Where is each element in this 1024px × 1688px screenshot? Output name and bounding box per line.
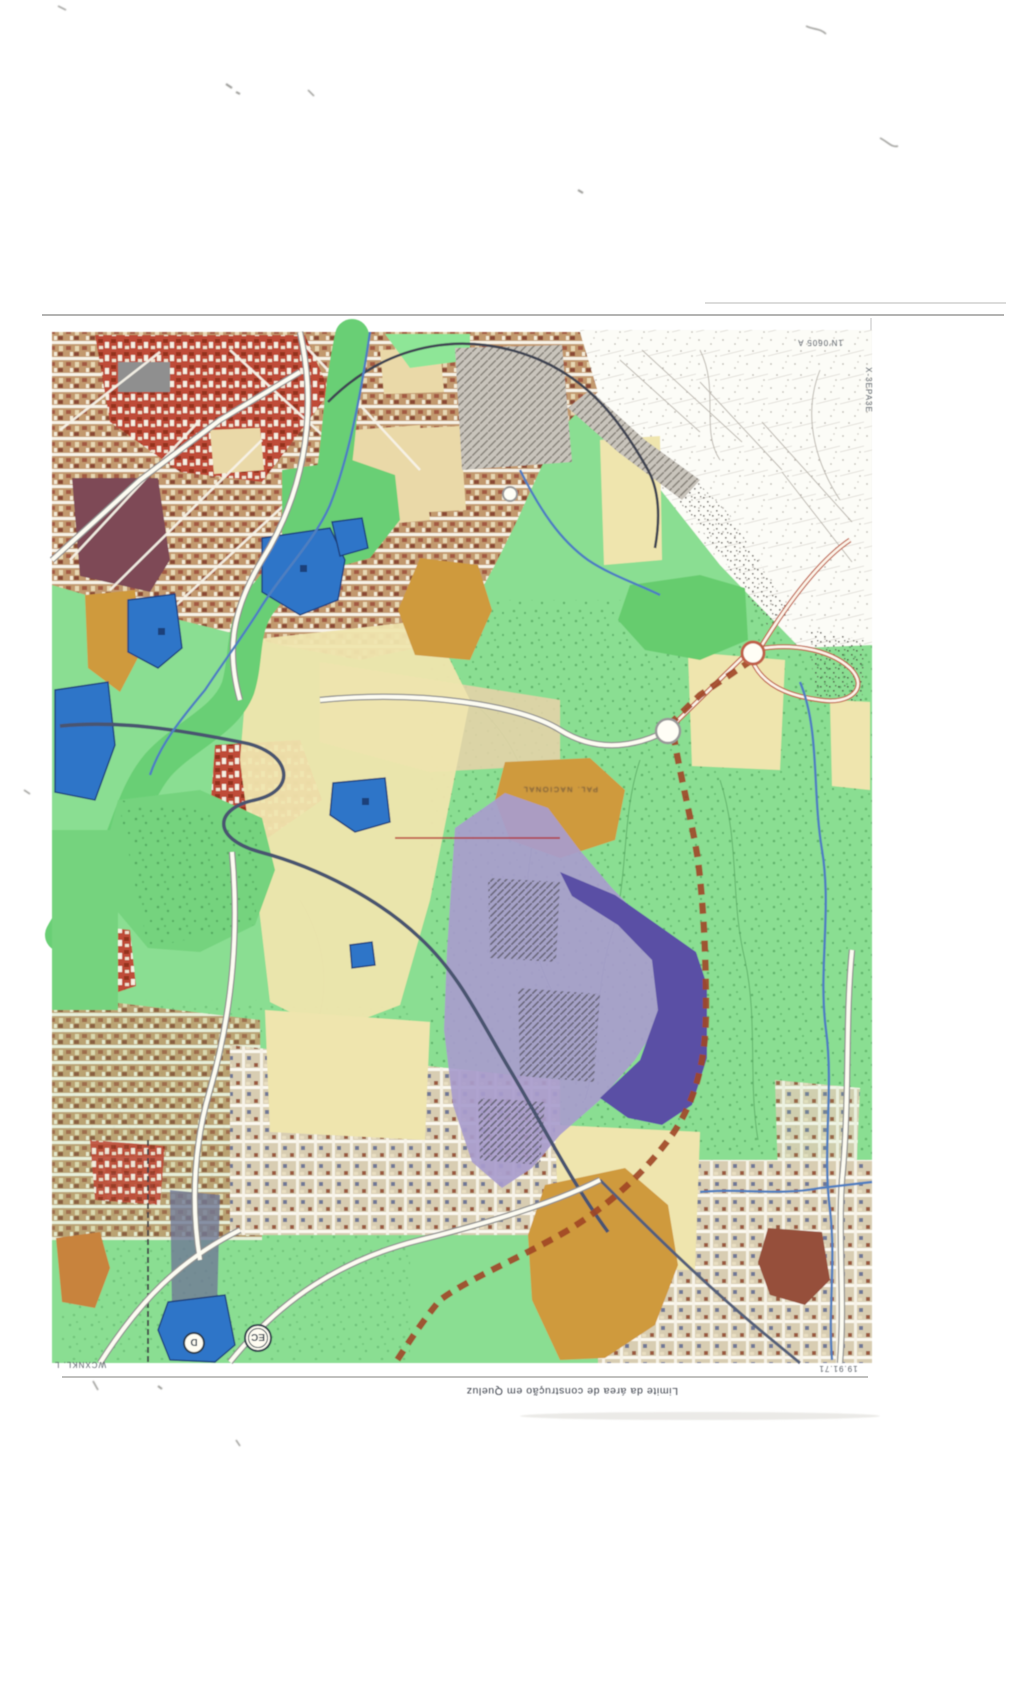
caption: Limite da área de construção em Queluz bbox=[466, 1385, 678, 1397]
corner-ref-top-right-h: 1N'0605 A bbox=[797, 338, 843, 347]
corner-ref-bottom-right: 19.91.71 bbox=[818, 1364, 857, 1373]
roundabout-small bbox=[503, 487, 517, 501]
industrial-gray-block bbox=[118, 362, 170, 392]
corner-ref-top-right-v: X-3EPA3E bbox=[864, 367, 873, 413]
scanned-page: EC D PAL. NACIONAL 1N'0605 A X-3EPA3E WC… bbox=[0, 0, 1024, 1688]
roundabout-red bbox=[742, 642, 764, 664]
scan-canvas: EC D PAL. NACIONAL 1N'0605 A X-3EPA3E WC… bbox=[0, 0, 1024, 1688]
railyard-hatched bbox=[455, 345, 572, 470]
roundabout-gray bbox=[656, 719, 680, 743]
map-sheet: EC D PAL. NACIONAL bbox=[52, 330, 872, 1363]
palace-label: PAL. NACIONAL bbox=[522, 785, 598, 794]
marker-d: D bbox=[190, 1336, 197, 1347]
marker-ec: EC bbox=[251, 1331, 265, 1342]
corner-ref-bottom-left: WCXNKL. L bbox=[54, 1360, 106, 1369]
